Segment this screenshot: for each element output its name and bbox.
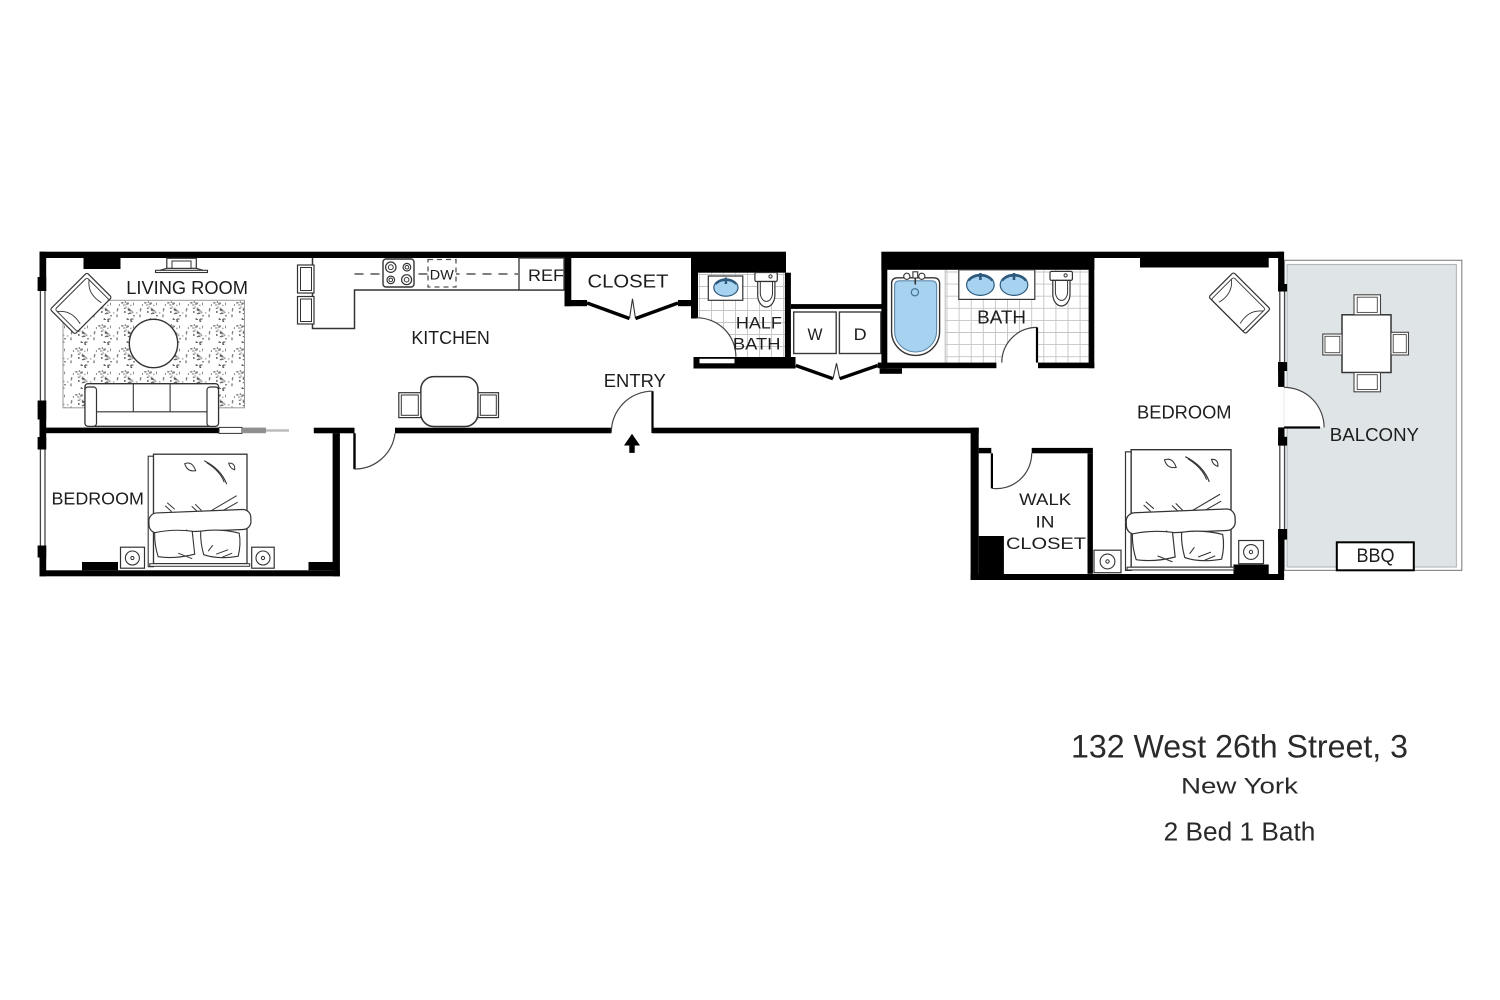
- svg-text:BBQ: BBQ: [1357, 546, 1395, 567]
- svg-text:HALF: HALF: [736, 315, 782, 333]
- svg-text:CLOSET: CLOSET: [588, 272, 669, 292]
- svg-text:WALK: WALK: [1019, 491, 1071, 509]
- svg-text:BEDROOM: BEDROOM: [52, 489, 144, 509]
- svg-text:DW: DW: [430, 267, 455, 283]
- svg-text:2 Bed 1 Bath: 2 Bed 1 Bath: [1164, 819, 1316, 847]
- svg-text:132 West 26th Street, 3: 132 West 26th Street, 3: [1071, 729, 1408, 765]
- svg-text:IN: IN: [1036, 514, 1055, 532]
- svg-text:CLOSET: CLOSET: [1006, 535, 1086, 553]
- svg-text:BATH: BATH: [733, 336, 781, 354]
- svg-text:BALCONY: BALCONY: [1330, 425, 1419, 445]
- svg-text:LIVING ROOM: LIVING ROOM: [126, 278, 248, 298]
- svg-text:KITCHEN: KITCHEN: [411, 328, 490, 348]
- svg-text:New York: New York: [1181, 774, 1299, 799]
- svg-text:REF: REF: [528, 266, 564, 285]
- svg-text:ENTRY: ENTRY: [604, 371, 666, 391]
- svg-text:W: W: [808, 326, 823, 344]
- svg-text:D: D: [854, 326, 867, 344]
- svg-text:BATH: BATH: [977, 307, 1026, 327]
- svg-text:BEDROOM: BEDROOM: [1137, 403, 1232, 423]
